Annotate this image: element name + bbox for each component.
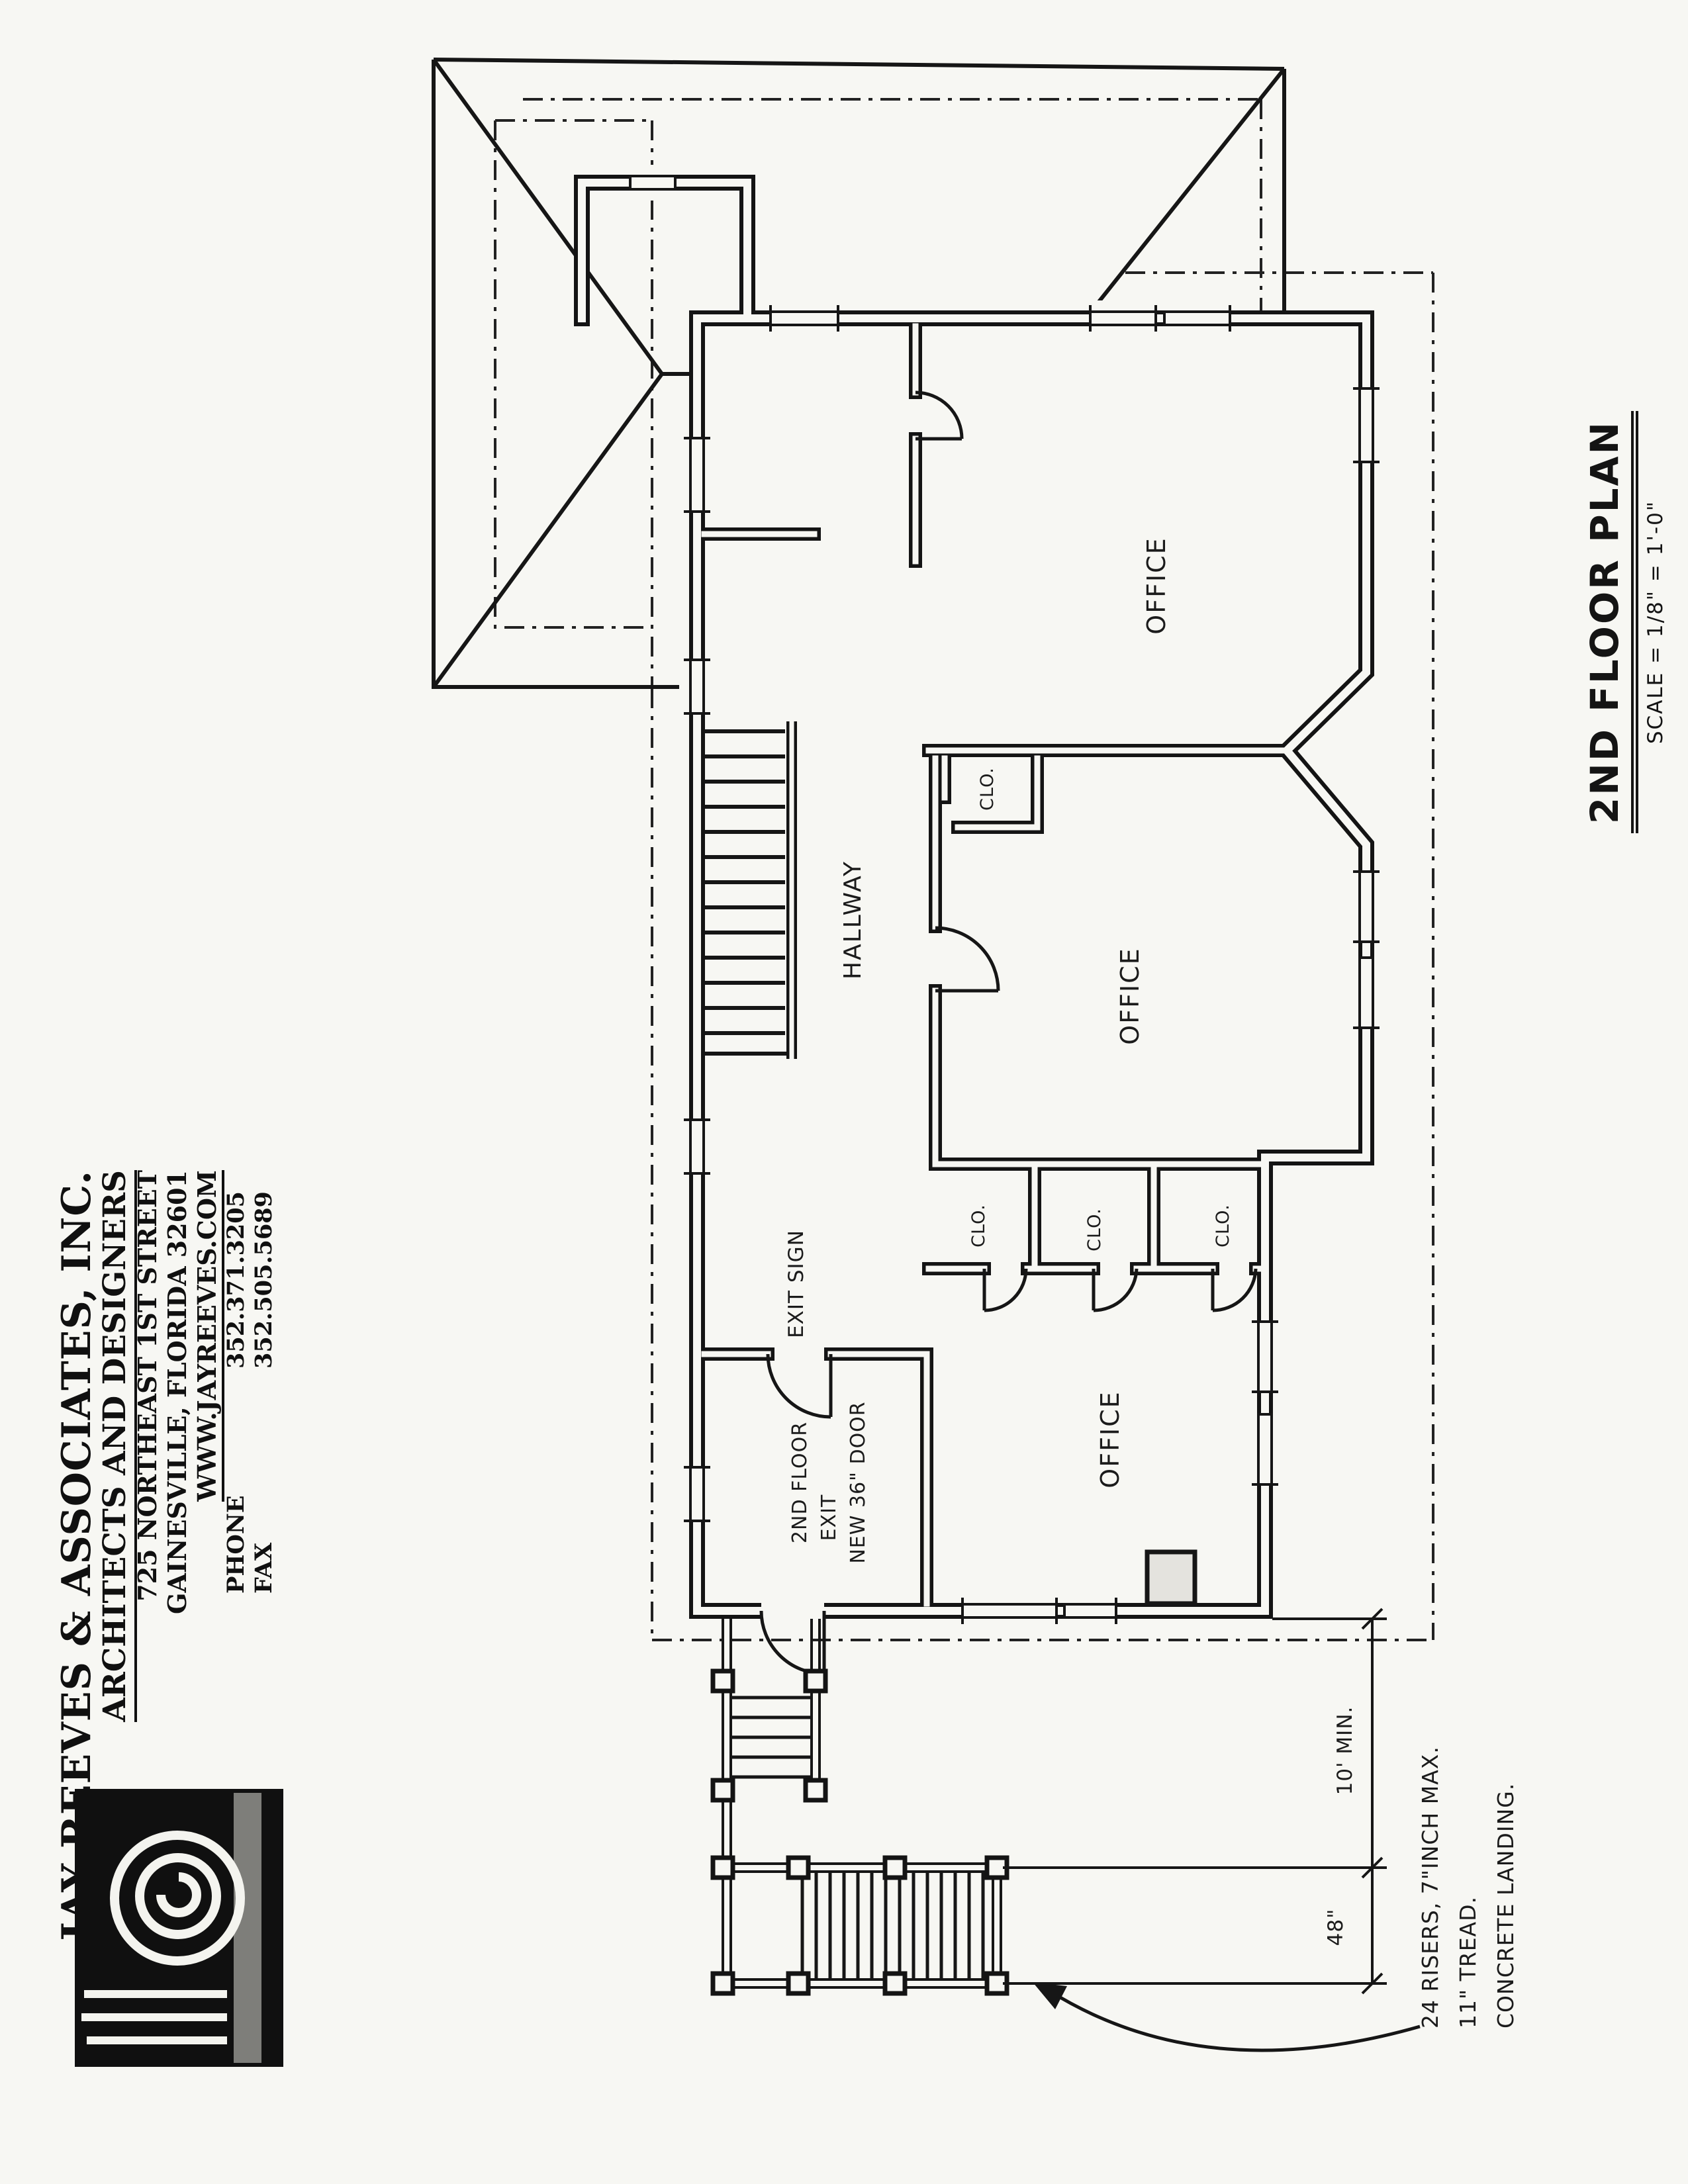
- phone-label: PHONE: [222, 1441, 250, 1594]
- interior-stair: [705, 721, 797, 1059]
- sheet-title: 2ND FLOOR PLAN: [1582, 411, 1638, 833]
- roof-overhang-dashed-lines: [495, 99, 1433, 1640]
- annotation-exit-sign: EXIT SIGN: [784, 1230, 808, 1338]
- room-label-closet-2: CLO.: [1084, 1208, 1105, 1251]
- annotation-stair-note-line2: 11" TREAD.: [1455, 1896, 1481, 2028]
- walls-core: [582, 183, 1366, 1611]
- company-logo: [75, 1789, 283, 2067]
- room-label-closet-small: CLO.: [977, 767, 998, 811]
- sheet-title-block: 2ND FLOOR PLAN SCALE = 1/8" = 1'-0": [1582, 371, 1678, 874]
- door-swings: [761, 392, 1256, 1674]
- chimney-symbol: [1147, 1552, 1195, 1604]
- annotation-exit-note-line2: EXIT: [818, 1494, 841, 1541]
- annotation-stair-note-line3: CONCRETE LANDING.: [1493, 1783, 1519, 2028]
- dimension-stair-width: 48": [1324, 1909, 1348, 1946]
- exterior-stairs: [713, 1619, 1007, 1993]
- title-block: JAY REEVES & ASSOCIATES, INC. ARCHITECTS…: [56, 1170, 334, 2067]
- annotation-exit-note-line1: 2ND FLOOR: [788, 1422, 812, 1543]
- landing-posts: [713, 1671, 1007, 1993]
- room-label-hallway: HALLWAY: [839, 860, 867, 979]
- phone-number: 352.371.3205: [222, 1170, 250, 1369]
- annotation-exit-note-line3: NEW 36" DOOR: [847, 1401, 870, 1563]
- room-label-closet-1: CLO.: [968, 1204, 989, 1248]
- fax-number: 352.505.5689: [250, 1170, 278, 1369]
- spiral-volute-icon: [75, 1789, 283, 2067]
- dimension-landing-depth: 10' MIN.: [1333, 1706, 1357, 1796]
- room-label-office-middle: OFFICE: [1115, 947, 1145, 1044]
- room-label-office-bottom: OFFICE: [1096, 1390, 1125, 1488]
- room-label-office-top: OFFICE: [1142, 537, 1171, 634]
- annotation-stair-note-line1: 24 RISERS, 7"INCH MAX.: [1417, 1746, 1443, 2028]
- fax-label: FAX: [250, 1441, 278, 1594]
- room-label-closet-3: CLO.: [1213, 1204, 1233, 1248]
- scanned-floor-plan-sheet: OFFICE OFFICE OFFICE HALLWAY CLO. CLO. C…: [0, 0, 1688, 2184]
- sheet-scale: SCALE = 1/8" = 1'-0": [1644, 371, 1667, 874]
